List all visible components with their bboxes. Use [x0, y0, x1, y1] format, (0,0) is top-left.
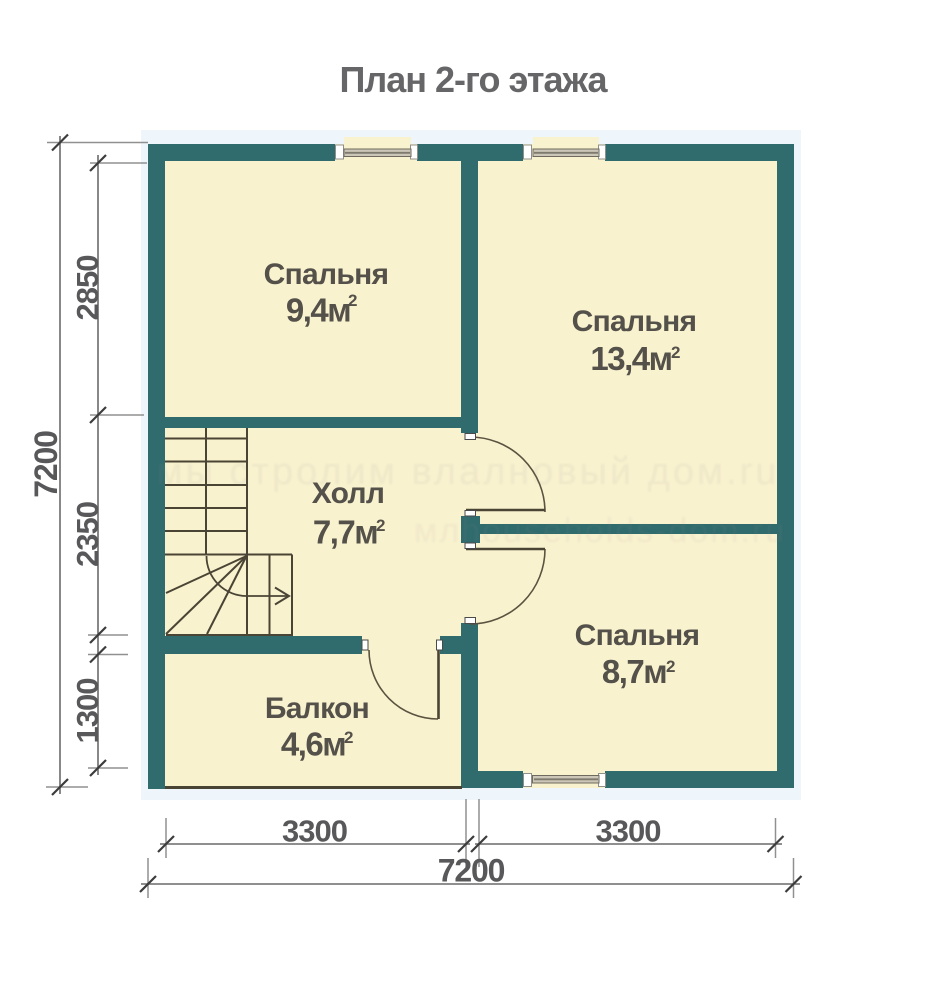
svg-text:План 2-го этажа: План 2-го этажа: [339, 59, 608, 100]
svg-text:2: 2: [376, 516, 385, 535]
svg-text:2: 2: [348, 291, 357, 310]
svg-text:13,4м: 13,4м: [590, 340, 671, 377]
svg-text:7200: 7200: [28, 431, 64, 498]
svg-text:млhouseholds-dom.ru: млhouseholds-dom.ru: [414, 512, 786, 550]
svg-text:1300: 1300: [70, 679, 105, 744]
svg-text:Балкон: Балкон: [265, 692, 369, 725]
svg-text:Спальня: Спальня: [575, 619, 700, 652]
svg-text:4,6м: 4,6м: [281, 726, 345, 763]
svg-text:3300: 3300: [282, 814, 347, 849]
svg-text:9,4м: 9,4м: [286, 292, 350, 329]
svg-text:мы стролим влалновый дом.ru: мы стролим влалновый дом.ru: [157, 451, 780, 493]
svg-text:8,7м: 8,7м: [602, 653, 666, 690]
svg-text:Спальня: Спальня: [572, 305, 697, 338]
svg-text:2: 2: [671, 343, 680, 362]
svg-text:2350: 2350: [70, 502, 105, 567]
svg-text:2: 2: [666, 657, 675, 676]
svg-text:3300: 3300: [596, 814, 661, 849]
svg-text:7,7м: 7,7м: [313, 514, 377, 551]
svg-text:Спальня: Спальня: [264, 258, 389, 291]
svg-text:7200: 7200: [438, 853, 505, 889]
svg-text:2850: 2850: [70, 256, 105, 321]
svg-text:2: 2: [344, 728, 353, 747]
